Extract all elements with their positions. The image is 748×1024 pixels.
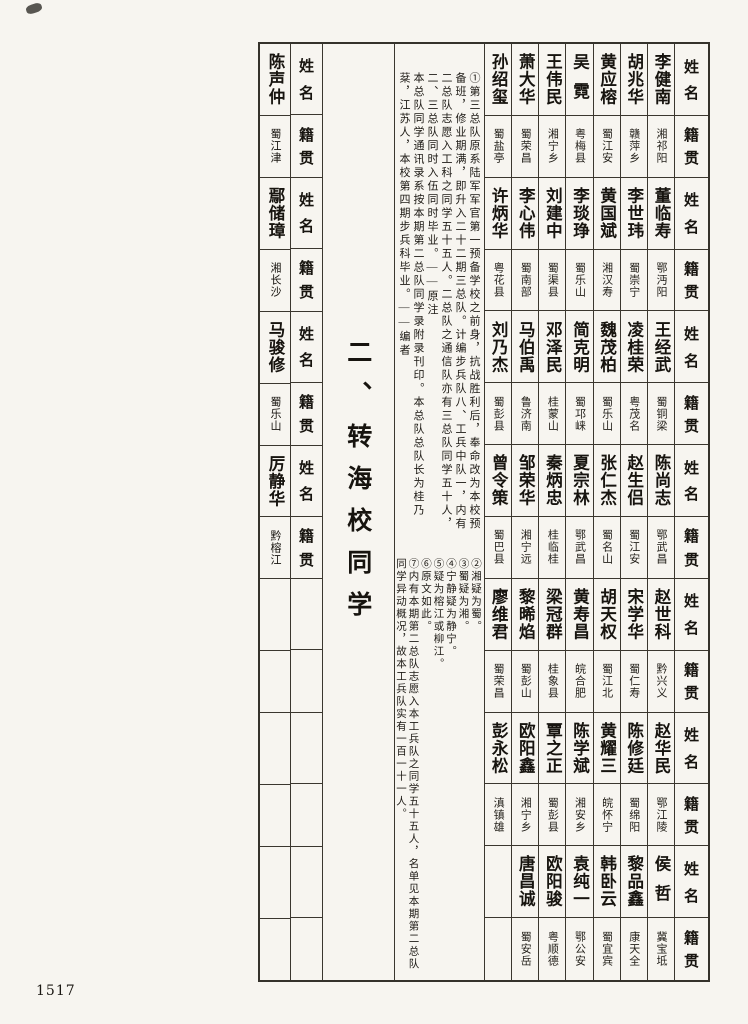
place-header-cell: 籍贯 bbox=[674, 250, 708, 312]
header-char: 名 bbox=[299, 82, 314, 103]
place-header-cell: 籍贯 bbox=[674, 784, 708, 846]
name-cell: 邓泽民 bbox=[538, 311, 565, 383]
header-char: 名 bbox=[299, 215, 314, 236]
empty-cell bbox=[260, 713, 291, 785]
name-cell: 欧阳鑫 bbox=[511, 713, 538, 785]
continuation-name-cell: 厉静华 bbox=[260, 446, 291, 518]
header-char: 籍 bbox=[684, 258, 699, 279]
empty-cell bbox=[291, 784, 323, 847]
place-cell: 蜀乐山 bbox=[593, 383, 620, 445]
place-cell: 滇镇雄 bbox=[484, 784, 511, 846]
name-cell: 唐昌诚 bbox=[511, 846, 538, 918]
name-cell: 廖维君 bbox=[484, 579, 511, 651]
name-cell: 夏宗林 bbox=[565, 445, 592, 517]
roster-table: 陈声仲蜀江津鄢储璋湘长沙马骏修蜀乐山厉静华黔榕江 姓名籍贯姓名籍贯姓名籍贯姓名籍… bbox=[258, 42, 710, 982]
header-char: 姓 bbox=[684, 323, 699, 344]
name-cell: 胡天权 bbox=[593, 579, 620, 651]
place-cell: 康天全 bbox=[620, 918, 647, 980]
place-cell: 湘安乡 bbox=[565, 784, 592, 846]
empty-cell bbox=[260, 847, 291, 919]
name-header-cell: 姓名 bbox=[291, 446, 323, 517]
place-cell: 蜀彭山 bbox=[511, 651, 538, 713]
place-cell: 湘宁乡 bbox=[511, 784, 538, 846]
page-number: 1517 bbox=[36, 983, 76, 999]
name-header-cell: 姓名 bbox=[674, 846, 708, 918]
name-cell: 彭永松 bbox=[484, 713, 511, 785]
header-char: 籍 bbox=[684, 392, 699, 413]
place-cell: 蜀江安 bbox=[620, 517, 647, 579]
place-cell: 蜀铜梁 bbox=[647, 383, 674, 445]
name-cell: 黄耀三 bbox=[593, 713, 620, 785]
header-char: 名 bbox=[299, 483, 314, 504]
header-char: 姓 bbox=[684, 457, 699, 478]
place-cell: 湘宁乡 bbox=[538, 116, 565, 178]
table-row: 姓名陈尚志赵生侣张仁杰夏宗林秦炳忠邹荣华曾令策 bbox=[484, 445, 708, 517]
place-cell: 鄂沔阳 bbox=[647, 250, 674, 312]
place-header-cell: 籍贯 bbox=[291, 517, 323, 580]
place-cell: 桂临桂 bbox=[538, 517, 565, 579]
place-cell: 赣萍乡 bbox=[620, 116, 647, 178]
name-cell: 陈修廷 bbox=[620, 713, 647, 785]
place-cell: 粤梅县 bbox=[565, 116, 592, 178]
empty-cell bbox=[484, 846, 511, 918]
header-char: 姓 bbox=[299, 189, 314, 210]
header-char: 名 bbox=[684, 216, 699, 237]
table-row: 姓名王经武凌桂荣魏茂柏简克明邓泽民马伯禹刘乃杰 bbox=[484, 311, 708, 383]
header-char: 贯 bbox=[299, 549, 314, 570]
empty-cell bbox=[484, 918, 511, 980]
name-cell: 董临寿 bbox=[647, 178, 674, 250]
name-cell: 简克明 bbox=[565, 311, 592, 383]
name-cell: 赵生侣 bbox=[620, 445, 647, 517]
empty-cell bbox=[291, 847, 323, 918]
name-cell: 黄寿昌 bbox=[565, 579, 592, 651]
place-cell: 蜀仁寿 bbox=[620, 651, 647, 713]
place-cell: 皖怀宁 bbox=[593, 784, 620, 846]
name-header-cell: 姓名 bbox=[291, 178, 323, 249]
header-char: 姓 bbox=[299, 55, 314, 76]
name-cell: 吴霓 bbox=[565, 44, 592, 116]
name-cell: 孙绍玺 bbox=[484, 44, 511, 116]
table-row: 姓名赵华民陈修廷黄耀三陈学斌覃之正欧阳鑫彭永松 bbox=[484, 713, 708, 785]
place-header-cell: 籍贯 bbox=[674, 651, 708, 713]
footnote: ⑥原文如此。 bbox=[419, 558, 432, 972]
empty-cell bbox=[260, 785, 291, 847]
place-cell: 蜀渠县 bbox=[538, 250, 565, 312]
name-cell: 邹荣华 bbox=[511, 445, 538, 517]
header-char: 姓 bbox=[684, 590, 699, 611]
table-row: 籍贯湘祁阳赣萍乡蜀江安粤梅县湘宁乡蜀荣昌蜀盐亭 bbox=[484, 116, 708, 178]
header-char: 名 bbox=[684, 885, 699, 906]
place-cell: 湘宁远 bbox=[511, 517, 538, 579]
footnote: ①第三总队原系陆军军官第一预备学校之前身，抗战胜利后，奉命改为本校预备班，修业期… bbox=[425, 72, 481, 534]
footnote: ⑦内有本期第二总队志愿入本工兵队之同学五十五人，名单见本期第二总队同学异动概况，… bbox=[394, 558, 419, 972]
name-cell: 凌桂荣 bbox=[620, 311, 647, 383]
header-char: 名 bbox=[684, 751, 699, 772]
header-char: 贯 bbox=[684, 147, 699, 168]
name-cell: 李世玮 bbox=[620, 178, 647, 250]
empty-cell bbox=[291, 918, 323, 980]
name-cell: 韩卧云 bbox=[593, 846, 620, 918]
place-cell: 皖合肥 bbox=[565, 651, 592, 713]
name-cell: 黎晞焰 bbox=[511, 579, 538, 651]
name-cell: 黄应榕 bbox=[593, 44, 620, 116]
name-cell: 刘建中 bbox=[538, 178, 565, 250]
place-cell: 蜀邛崃 bbox=[565, 383, 592, 445]
place-cell: 鄂江陵 bbox=[647, 784, 674, 846]
place-cell: 蜀南部 bbox=[511, 250, 538, 312]
empty-cell bbox=[291, 579, 323, 650]
header-char: 名 bbox=[299, 349, 314, 370]
place-header-cell: 籍贯 bbox=[674, 116, 708, 178]
place-cell: 鲁济南 bbox=[511, 383, 538, 445]
place-cell: 粤茂名 bbox=[620, 383, 647, 445]
name-cell: 黎品鑫 bbox=[620, 846, 647, 918]
name-cell: 黄国斌 bbox=[593, 178, 620, 250]
place-cell: 粤顺德 bbox=[538, 918, 565, 980]
empty-cell bbox=[291, 650, 323, 713]
name-cell: 赵世科 bbox=[647, 579, 674, 651]
table-row: 籍贯鄂江陵蜀绵阳皖怀宁湘安乡蜀彭县湘宁乡滇镇雄 bbox=[484, 784, 708, 846]
footnote: ③蜀疑为湘。 bbox=[456, 558, 469, 972]
table-row: 籍贯鄂武昌蜀江安蜀名山鄂武昌桂临桂湘宁远蜀巴县 bbox=[484, 517, 708, 579]
place-cell: 粤花县 bbox=[484, 250, 511, 312]
name-cell: 宋学华 bbox=[620, 579, 647, 651]
table-row: 籍贯黔兴义蜀仁寿蜀江北皖合肥桂象县蜀彭山蜀荣昌 bbox=[484, 651, 708, 713]
place-cell: 鄂武昌 bbox=[647, 517, 674, 579]
continuation-place-cell: 黔榕江 bbox=[260, 517, 291, 579]
place-cell: 湘汉寿 bbox=[593, 250, 620, 312]
place-header-cell: 籍贯 bbox=[674, 517, 708, 579]
header-char: 名 bbox=[684, 82, 699, 103]
name-cell: 陈尚志 bbox=[647, 445, 674, 517]
place-cell: 蜀荣昌 bbox=[511, 116, 538, 178]
name-header-cell: 姓名 bbox=[674, 178, 708, 250]
place-cell: 桂象县 bbox=[538, 651, 565, 713]
place-cell: 冀宝坻 bbox=[647, 918, 674, 980]
name-cell: 王伟民 bbox=[538, 44, 565, 116]
empty-cell bbox=[260, 919, 291, 980]
place-cell: 鄂武昌 bbox=[565, 517, 592, 579]
name-header-cell: 姓名 bbox=[674, 579, 708, 651]
header-char: 贯 bbox=[684, 816, 699, 837]
header-char: 贯 bbox=[684, 415, 699, 436]
name-cell: 李心伟 bbox=[511, 178, 538, 250]
header-char: 姓 bbox=[684, 56, 699, 77]
name-cell: 张仁杰 bbox=[593, 445, 620, 517]
table-row: 籍贯鄂沔阳蜀崇宁湘汉寿蜀乐山蜀渠县蜀南部粤花县 bbox=[484, 250, 708, 312]
name-header-cell: 姓名 bbox=[674, 713, 708, 785]
header-char: 籍 bbox=[684, 525, 699, 546]
name-cell: 刘乃杰 bbox=[484, 311, 511, 383]
table-row: 籍贯冀宝坻康天全蜀宜宾鄂公安粤顺德蜀安岳 bbox=[484, 918, 708, 980]
scan-artifact bbox=[25, 2, 43, 16]
name-header-cell: 姓名 bbox=[291, 312, 323, 383]
name-cell: 梁冠群 bbox=[538, 579, 565, 651]
empty-cell bbox=[291, 713, 323, 784]
header-char: 姓 bbox=[299, 323, 314, 344]
name-cell: 覃之正 bbox=[538, 713, 565, 785]
name-header-cell: 姓名 bbox=[674, 311, 708, 383]
header-char: 籍 bbox=[684, 927, 699, 948]
header-char: 名 bbox=[684, 350, 699, 371]
name-cell: 许炳华 bbox=[484, 178, 511, 250]
place-cell: 蜀荣昌 bbox=[484, 651, 511, 713]
place-header-cell: 籍贯 bbox=[291, 115, 323, 178]
continuation-place-cell: 湘长沙 bbox=[260, 250, 291, 312]
roster-grid: 姓名李健南胡兆华黄应榕吴霓王伟民萧大华孙绍玺籍贯湘祁阳赣萍乡蜀江安粤梅县湘宁乡蜀… bbox=[484, 44, 708, 980]
place-cell: 蜀彭县 bbox=[538, 784, 565, 846]
continuation-name-cell: 鄢储璋 bbox=[260, 178, 291, 250]
header-char: 籍 bbox=[299, 391, 314, 412]
table-row: 姓名侯哲黎品鑫韩卧云袁纯一欧阳骏唐昌诚 bbox=[484, 846, 708, 918]
name-cell: 赵华民 bbox=[647, 713, 674, 785]
place-cell: 蜀乐山 bbox=[565, 250, 592, 312]
name-cell: 胡兆华 bbox=[620, 44, 647, 116]
header-char: 贯 bbox=[299, 147, 314, 168]
footnote: ⑤疑为榕江或柳江。 bbox=[431, 558, 444, 972]
continuation-place-cell: 蜀乐山 bbox=[260, 384, 291, 446]
header-char: 籍 bbox=[299, 525, 314, 546]
continuation-name-cell: 陈声仲 bbox=[260, 44, 291, 116]
place-cell: 蜀名山 bbox=[593, 517, 620, 579]
name-cell: 李健南 bbox=[647, 44, 674, 116]
place-cell: 蜀江北 bbox=[593, 651, 620, 713]
name-header-cell: 姓名 bbox=[291, 44, 323, 115]
header-char: 姓 bbox=[299, 457, 314, 478]
page-title: 二、转海校同学 bbox=[339, 339, 375, 633]
header-char: 贯 bbox=[684, 950, 699, 971]
header-char: 籍 bbox=[299, 257, 314, 278]
scan-page: 陈声仲蜀江津鄢储璋湘长沙马骏修蜀乐山厉静华黔榕江 姓名籍贯姓名籍贯姓名籍贯姓名籍… bbox=[0, 0, 748, 1024]
header-char: 姓 bbox=[684, 724, 699, 745]
name-cell: 欧阳骏 bbox=[538, 846, 565, 918]
table-row: 姓名李健南胡兆华黄应榕吴霓王伟民萧大华孙绍玺 bbox=[484, 44, 708, 116]
name-cell: 王经武 bbox=[647, 311, 674, 383]
header-char: 籍 bbox=[684, 793, 699, 814]
header-char: 贯 bbox=[299, 415, 314, 436]
continuation-headers-column: 姓名籍贯姓名籍贯姓名籍贯姓名籍贯 bbox=[291, 44, 323, 980]
footnote: ②湘疑为蜀。 bbox=[469, 558, 482, 972]
notes-lower: ②湘疑为蜀。③蜀疑为湘。④宁静疑为静宁。⑤疑为榕江或柳江。⑥原文如此。⑦内有本期… bbox=[394, 558, 482, 972]
header-char: 籍 bbox=[299, 124, 314, 145]
name-cell: 马伯禹 bbox=[511, 311, 538, 383]
place-header-cell: 籍贯 bbox=[674, 383, 708, 445]
header-char: 籍 bbox=[684, 124, 699, 145]
place-cell: 蜀盐亭 bbox=[484, 116, 511, 178]
notes-upper: ①第三总队原系陆军军官第一预备学校之前身，抗战胜利后，奉命改为本校预备班，修业期… bbox=[397, 72, 481, 534]
header-char: 贯 bbox=[299, 281, 314, 302]
name-cell: 秦炳忠 bbox=[538, 445, 565, 517]
footnote: 本总队同学通讯录系按本期第二总队同学录附录刊印。本总队总队长为桂乃棻，江苏人，本… bbox=[397, 72, 425, 534]
place-header-cell: 籍贯 bbox=[291, 249, 323, 312]
place-cell: 蜀宜宾 bbox=[593, 918, 620, 980]
empty-cell bbox=[260, 579, 291, 651]
name-header-cell: 姓名 bbox=[674, 445, 708, 517]
header-char: 名 bbox=[684, 483, 699, 504]
place-header-cell: 籍贯 bbox=[674, 918, 708, 980]
continuation-values-column: 陈声仲蜀江津鄢储璋湘长沙马骏修蜀乐山厉静华黔榕江 bbox=[260, 44, 291, 980]
name-cell: 侯哲 bbox=[647, 846, 674, 918]
continuation-place-cell: 蜀江津 bbox=[260, 116, 291, 178]
name-cell: 李琰琤 bbox=[565, 178, 592, 250]
header-char: 籍 bbox=[684, 659, 699, 680]
table-row: 籍贯蜀铜梁粤茂名蜀乐山蜀邛崃桂蒙山鲁济南蜀彭县 bbox=[484, 383, 708, 445]
name-cell: 魏茂柏 bbox=[593, 311, 620, 383]
place-cell: 黔兴义 bbox=[647, 651, 674, 713]
place-cell: 桂蒙山 bbox=[538, 383, 565, 445]
name-cell: 曾令策 bbox=[484, 445, 511, 517]
notes-column: ①第三总队原系陆军军官第一预备学校之前身，抗战胜利后，奉命改为本校预备班，修业期… bbox=[395, 44, 484, 980]
header-char: 贯 bbox=[684, 281, 699, 302]
place-cell: 湘祁阳 bbox=[647, 116, 674, 178]
table-row: 姓名赵世科宋学华胡天权黄寿昌梁冠群黎晞焰廖维君 bbox=[484, 579, 708, 651]
footnote: ④宁静疑为静宁。 bbox=[444, 558, 457, 972]
place-cell: 蜀江安 bbox=[593, 116, 620, 178]
name-header-cell: 姓名 bbox=[674, 44, 708, 116]
title-column: 二、转海校同学 bbox=[323, 44, 395, 980]
place-cell: 鄂公安 bbox=[565, 918, 592, 980]
place-cell: 蜀绵阳 bbox=[620, 784, 647, 846]
place-cell: 蜀彭县 bbox=[484, 383, 511, 445]
name-cell: 萧大华 bbox=[511, 44, 538, 116]
header-char: 姓 bbox=[684, 189, 699, 210]
header-char: 姓 bbox=[684, 858, 699, 879]
name-cell: 袁纯一 bbox=[565, 846, 592, 918]
continuation-name-cell: 马骏修 bbox=[260, 312, 291, 384]
name-cell: 陈学斌 bbox=[565, 713, 592, 785]
empty-cell bbox=[260, 651, 291, 713]
place-header-cell: 籍贯 bbox=[291, 383, 323, 446]
header-char: 贯 bbox=[684, 549, 699, 570]
header-char: 贯 bbox=[684, 682, 699, 703]
header-char: 名 bbox=[684, 617, 699, 638]
place-cell: 蜀巴县 bbox=[484, 517, 511, 579]
place-cell: 蜀崇宁 bbox=[620, 250, 647, 312]
table-row: 姓名董临寿李世玮黄国斌李琰琤刘建中李心伟许炳华 bbox=[484, 178, 708, 250]
place-cell: 蜀安岳 bbox=[511, 918, 538, 980]
